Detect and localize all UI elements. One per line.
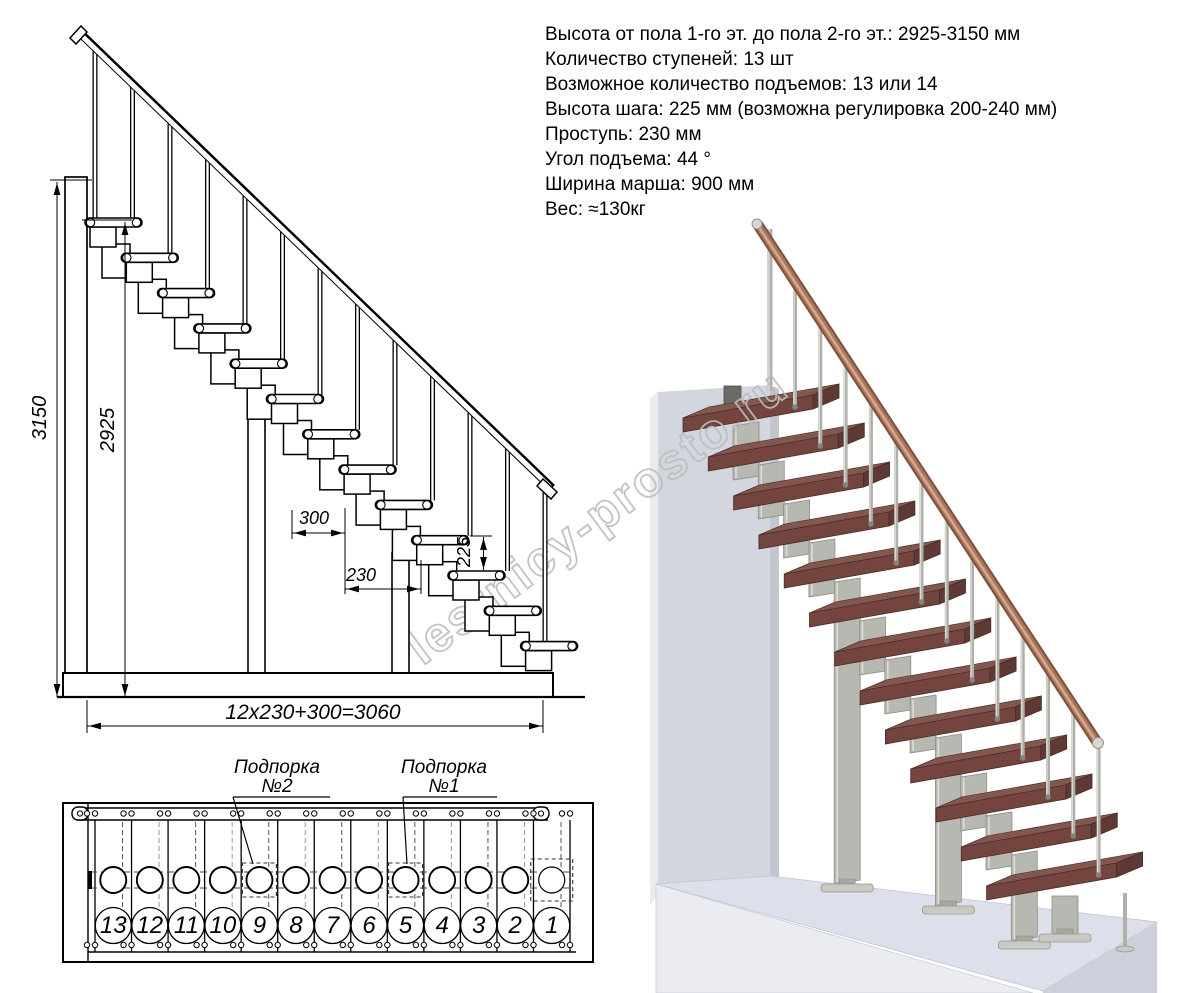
plan-step-number: 3 (472, 912, 486, 939)
step-module-box (126, 262, 152, 282)
staircase-spec-sheet: lestnicy-prosto.ru 3150 2925 300 230 225… (0, 0, 1191, 993)
plan-post-circle (210, 867, 236, 893)
tread-nose (123, 254, 131, 262)
plan-post-circle (466, 867, 492, 893)
plan-view-geometry: 13121110987654321Подпорка№2Подпорка№1 (63, 757, 593, 962)
dim-tread-run: 230 (345, 565, 376, 585)
plan-hinge (129, 942, 134, 947)
tread-nose (159, 289, 167, 297)
step-module-box (453, 580, 479, 600)
spec-line: Высота от пола 1-го эт. до пола 2-го эт.… (545, 22, 1057, 47)
plan-hinge (275, 811, 280, 816)
plan-hinge (421, 811, 426, 816)
baluster-collar (868, 521, 874, 527)
step-module-box (526, 651, 552, 671)
tread-nose (205, 289, 213, 297)
plan-hinge (92, 811, 97, 816)
bottom-support-module (1052, 896, 1078, 934)
plan-post-circle (320, 867, 346, 893)
step-module-box (380, 509, 406, 529)
plan-post-circle (429, 867, 455, 893)
column-base-flange (821, 884, 873, 892)
render-3d-staircase (650, 219, 1157, 993)
spec-line: Угол подъема: 44 ° (545, 147, 1057, 172)
dim-platform-run: 300 (299, 508, 329, 528)
spec-line: Высота шага: 225 мм (возможна регулировк… (545, 97, 1057, 122)
plan-hinge (312, 811, 317, 816)
plan-hinge (413, 942, 418, 947)
plan-step-number: 2 (508, 912, 522, 939)
dim-arrow (347, 586, 359, 593)
plan-hinge (348, 942, 353, 947)
plan-hinge (267, 811, 272, 816)
plan-hinge (531, 811, 536, 816)
spec-line: Возможное количество подъемов: 13 или 14 (545, 72, 1057, 97)
plan-step-number: 13 (100, 912, 127, 939)
plan-hinge (340, 811, 345, 816)
plan-post-circle (100, 867, 126, 893)
tread-nose (522, 642, 530, 650)
plan-hinge (194, 942, 199, 947)
plan-hinge (567, 942, 572, 947)
dim-arrow (294, 530, 306, 537)
support-label-title: Подпорка (234, 757, 320, 778)
baluster-collar (919, 599, 925, 605)
tread-nose (386, 465, 394, 473)
spec-text-block: Высота от пола 1-го эт. до пола 2-го эт.… (545, 22, 1057, 222)
baluster-collar (1096, 872, 1102, 878)
dim-arrow (331, 530, 343, 537)
tread-nose (268, 395, 276, 403)
plan-hinge (486, 942, 491, 947)
plan-step-number: 8 (289, 912, 303, 939)
plan-axis-start (88, 871, 92, 889)
plan-hinge (267, 942, 272, 947)
plan-hinge (559, 942, 564, 947)
plan-hinge (567, 811, 572, 816)
plan-hinge (413, 811, 418, 816)
plan-hinge (157, 942, 162, 947)
plan-hinge (385, 942, 390, 947)
plan-hinge (421, 942, 426, 947)
baluster-collar (1020, 755, 1026, 761)
plan-hinge (494, 942, 499, 947)
plan-post-circle (246, 867, 272, 893)
side-view-drawing: 3150 2925 300 230 225 12x230+300=3060 (29, 26, 585, 733)
plan-hinge (385, 811, 390, 816)
tread-nose (568, 642, 576, 650)
baluster-collar (1045, 794, 1051, 800)
plan-hinge (157, 811, 162, 816)
tread-nose (532, 607, 540, 615)
plan-hinge (238, 811, 243, 816)
dim-step-height: 225 (454, 536, 474, 568)
plan-hinge (92, 942, 97, 947)
tread-nose (486, 607, 494, 615)
plan-hinge (238, 942, 243, 947)
tread-nose (449, 571, 457, 579)
plan-hinge (531, 942, 536, 947)
tread-nose (232, 360, 240, 368)
plan-hinge (194, 811, 199, 816)
dim-floor-to-floor: 3150 (29, 396, 51, 441)
side-view-geometry (50, 26, 585, 733)
tread-nose (413, 536, 421, 544)
plan-hinge (523, 942, 528, 947)
tread-nose (340, 465, 348, 473)
dim-arrow (480, 538, 487, 550)
plan-step-number: 12 (136, 912, 163, 939)
plan-hinge (304, 811, 309, 816)
plan-hinge (84, 811, 89, 816)
support-column-1 (392, 553, 409, 673)
tread-nose (495, 571, 503, 579)
plan-hinge (304, 942, 309, 947)
plan-step-number: 11 (174, 912, 199, 939)
support-label-number: №1 (428, 776, 459, 797)
dim-arrow (54, 684, 61, 696)
plan-view-drawing: 13121110987654321Подпорка№2Подпорка№1 (63, 757, 593, 962)
plan-step-number: 4 (435, 912, 448, 939)
dim-floor-to-top-step: 2925 (97, 407, 119, 453)
step-module-box (272, 404, 298, 424)
baluster-collar (843, 482, 849, 488)
plan-hinge (121, 811, 126, 816)
tread-nose (377, 501, 385, 509)
plan-hinge (486, 811, 491, 816)
plan-hinge (494, 811, 499, 816)
spec-line: Проступь: 230 мм (545, 122, 1057, 147)
plan-rail-right-pin (538, 811, 543, 816)
baluster-collar (893, 560, 899, 566)
plan-post-circle (356, 867, 382, 893)
plan-hinge (312, 942, 317, 947)
plan-hinge (165, 942, 170, 947)
plan-hinge (377, 811, 382, 816)
plan-hinge (230, 811, 235, 816)
tread-nose (423, 501, 431, 509)
tread-nose (350, 430, 358, 438)
tread-nose (314, 395, 322, 403)
dim-arrow (89, 723, 101, 730)
rod-base (1116, 946, 1134, 952)
support-column-2 (248, 414, 265, 673)
tread-nose (195, 324, 203, 332)
handrail-end-cap (537, 479, 557, 499)
plan-step-number: 5 (399, 912, 413, 939)
dim-arrow (407, 586, 419, 593)
plan-hinge (275, 942, 280, 947)
spec-line: Ширина марша: 900 мм (545, 172, 1057, 197)
step-module-box (489, 615, 515, 635)
plan-hinge (450, 811, 455, 816)
plan-hinge (121, 942, 126, 947)
support-label-number: №2 (261, 776, 293, 797)
plan-hinge (450, 942, 455, 947)
plan-rail-left-pin (77, 811, 82, 816)
tread-nose (304, 430, 312, 438)
plan-hinge (559, 811, 564, 816)
dim-arrow (54, 183, 61, 195)
plan-hinge (523, 811, 528, 816)
step-module-box (199, 333, 225, 353)
plan-post-circle (502, 867, 528, 893)
plan-post-circle (173, 867, 199, 893)
tread-nose (278, 360, 286, 368)
plan-post-circle (283, 867, 309, 893)
baluster-collar (995, 716, 1001, 722)
spine-module (1011, 851, 1037, 941)
plan-step-number: 6 (362, 912, 376, 939)
dim-arrow (529, 723, 541, 730)
dim-total-run: 12x230+300=3060 (225, 701, 400, 724)
plan-hinge (84, 942, 89, 947)
plan-hinge (458, 811, 463, 816)
baluster-collar (944, 638, 950, 644)
column-base-flange (922, 906, 974, 914)
tread-nose (241, 324, 249, 332)
plan-post-circle (393, 867, 419, 893)
baluster-collar (969, 677, 975, 683)
baluster-collar (1071, 833, 1077, 839)
plan-hinge (165, 811, 170, 816)
plan-post-circle (539, 867, 565, 893)
spec-line: Количество ступеней: 13 шт (545, 47, 1057, 72)
plan-hinge (340, 942, 345, 947)
spec-line: Вес: ≈130кг (545, 197, 1057, 222)
tread-nose (132, 218, 140, 226)
plan-step-number: 7 (326, 912, 341, 939)
plan-hinge (230, 942, 235, 947)
step-module-box (235, 368, 261, 388)
base-plate (63, 673, 553, 697)
spine-module (834, 578, 860, 884)
support-label-title: Подпорка (401, 757, 487, 778)
step-module-box (344, 474, 370, 494)
baluster-collar (818, 443, 824, 449)
column-base-flange (1039, 934, 1091, 942)
plan-post-circle (137, 867, 163, 893)
plan-step-number: 1 (545, 912, 558, 939)
step-module-box (163, 298, 189, 318)
floor-slab-edge (65, 177, 87, 673)
step-module-box (90, 227, 116, 247)
plan-hinge (202, 942, 207, 947)
plan-hinge (458, 942, 463, 947)
step-module-box (308, 439, 334, 459)
plan-hinge (202, 811, 207, 816)
plan-hinge (377, 942, 382, 947)
tread-nose (169, 254, 177, 262)
plan-step-number: 9 (253, 912, 266, 939)
plan-step-number: 10 (210, 912, 237, 939)
plan-hinge (348, 811, 353, 816)
plan-hinge (129, 811, 134, 816)
handrail-bottom-cap (1093, 738, 1104, 749)
